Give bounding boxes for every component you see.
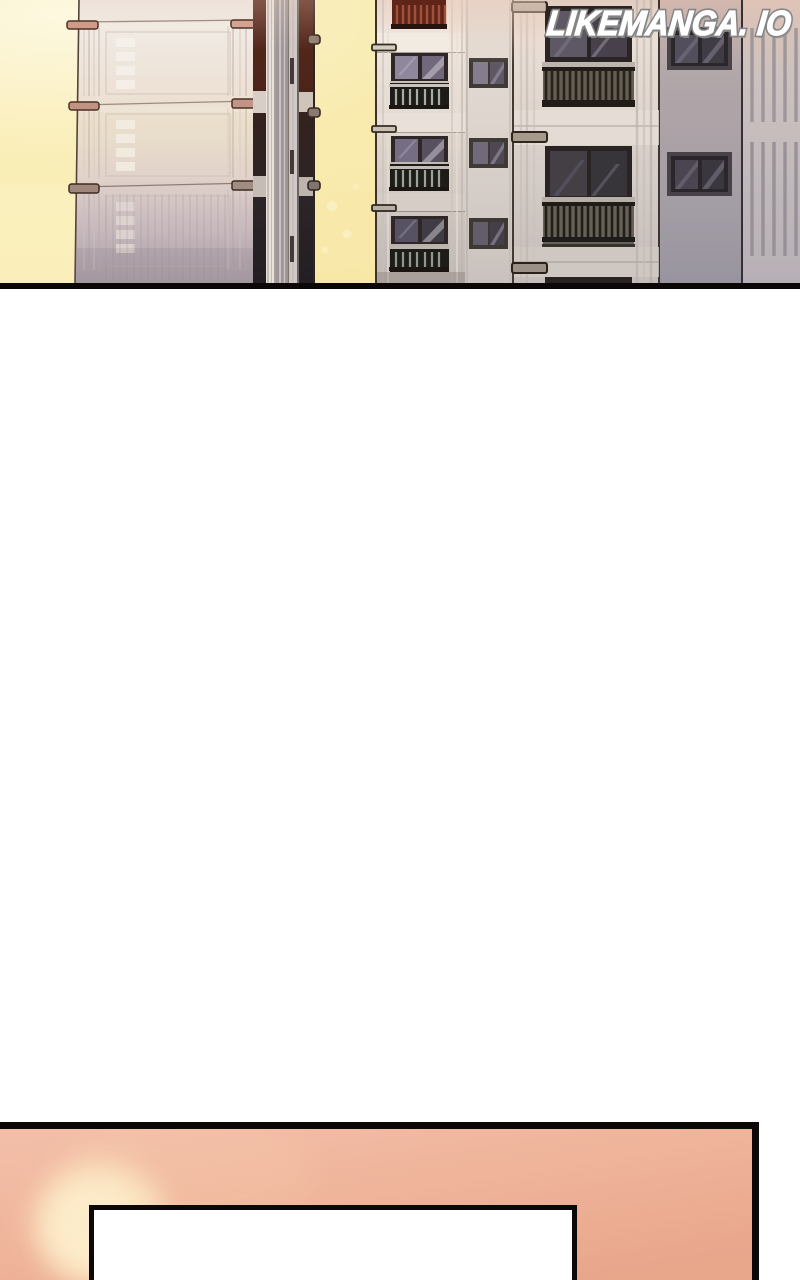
svg-text:LIKEMANGA. IO: LIKEMANGA. IO (545, 4, 793, 43)
